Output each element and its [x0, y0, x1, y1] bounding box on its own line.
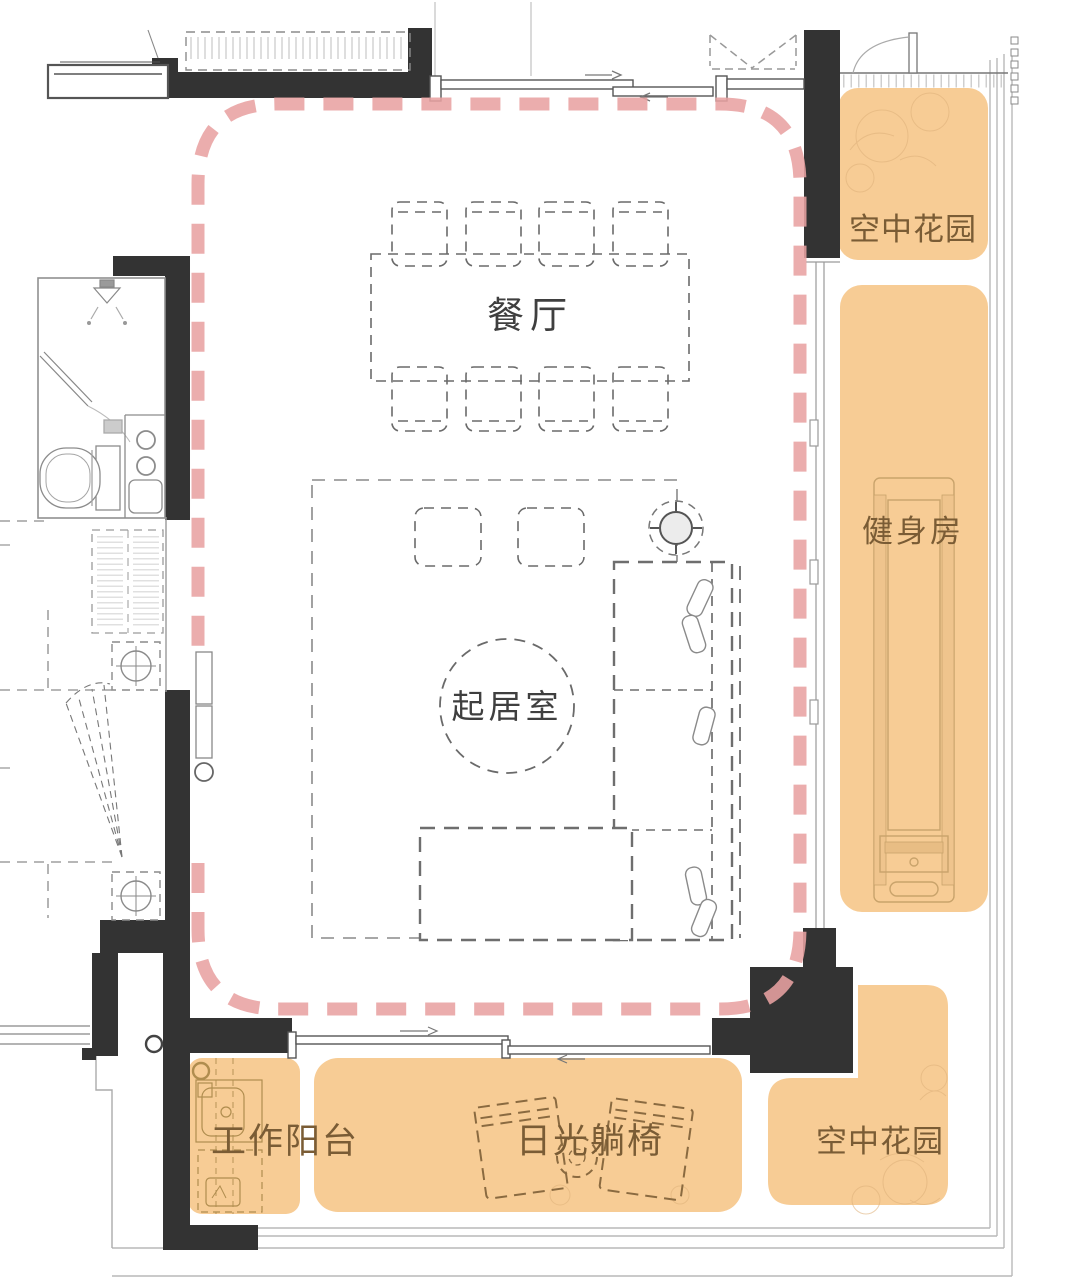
gym-zone — [840, 285, 988, 912]
sun-lounger-label: 日光躺椅 — [516, 1122, 664, 1162]
dining-label: 餐厅 — [487, 294, 573, 337]
sky-garden-bottom-label: 空中花园 — [816, 1124, 944, 1160]
speaker-lower — [112, 872, 160, 920]
swing-fan-dashed — [66, 683, 122, 857]
sliding-door-bottom — [288, 1027, 710, 1063]
gym-label: 健身房 — [862, 514, 964, 550]
wall-left-lower — [165, 690, 190, 928]
door-swing-top-right — [840, 33, 1008, 81]
pocket-door-leaves — [195, 652, 213, 781]
door-knob-circle — [195, 763, 213, 781]
window-top-left — [48, 30, 168, 98]
window-wall-right — [806, 262, 840, 928]
floor-plan: 餐厅 起居室 空中花园 健身房 空中花园 工作阳台 日光躺椅 — [0, 0, 1080, 1285]
layout-dashed-lines — [0, 521, 112, 918]
window-bottom-left — [0, 1026, 90, 1044]
wall-top-right-column — [804, 30, 840, 258]
sofa-chaise — [420, 828, 632, 940]
wall-bottom-right-step — [712, 928, 853, 1073]
ottoman-left — [415, 508, 481, 566]
ottoman-right — [518, 508, 584, 566]
dining-chairs-top — [392, 202, 668, 266]
bathroom — [38, 278, 165, 518]
overhead-opening-dashed — [710, 35, 796, 69]
wall-bath-top — [113, 256, 190, 276]
dining-chairs-bottom — [392, 367, 668, 431]
wall-left-upper — [165, 276, 190, 520]
sliding-door-top — [430, 71, 804, 101]
door-pivot-circle — [146, 1036, 162, 1052]
sky-garden-top-label: 空中花园 — [849, 212, 977, 248]
living-label: 起居室 — [452, 687, 563, 726]
floor-lamp — [649, 501, 703, 555]
wall-top — [160, 72, 432, 98]
work-balcony-label: 工作阳台 — [211, 1122, 359, 1162]
wardrobe — [92, 530, 163, 633]
speaker-upper — [112, 642, 160, 690]
wall-balcony-left — [163, 953, 190, 1250]
amenity-zones — [188, 88, 988, 1214]
